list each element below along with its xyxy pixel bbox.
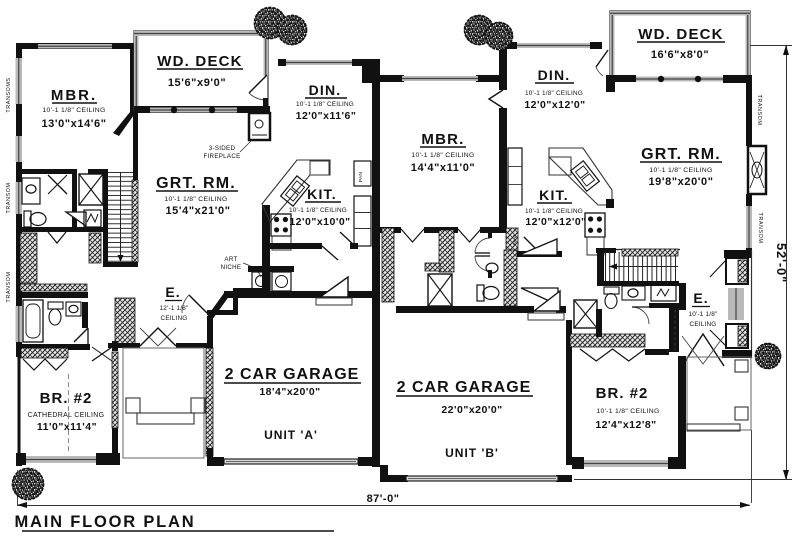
svg-text:15'6"x9'0": 15'6"x9'0" <box>168 77 226 89</box>
svg-text:GRT. RM.: GRT. RM. <box>641 146 721 163</box>
svg-text:DIN.: DIN. <box>309 82 342 98</box>
svg-text:PAN: PAN <box>358 172 364 182</box>
svg-text:MBR.: MBR. <box>421 131 464 148</box>
svg-text:TRANSOM: TRANSOM <box>6 183 12 214</box>
svg-text:10'-1 1/8" CEILING: 10'-1 1/8" CEILING <box>42 107 105 114</box>
svg-text:MAIN FLOOR PLAN: MAIN FLOOR PLAN <box>15 513 196 531</box>
svg-text:16'6"x8'0": 16'6"x8'0" <box>651 49 709 61</box>
svg-text:KIT.: KIT. <box>307 186 337 202</box>
svg-text:11'0"x11'4": 11'0"x11'4" <box>37 421 97 433</box>
svg-text:E.: E. <box>165 284 180 300</box>
svg-text:10'-1 1/8": 10'-1 1/8" <box>689 311 718 318</box>
svg-text:10'-1 1/8" CEILING: 10'-1 1/8" CEILING <box>525 208 583 215</box>
svg-text:18'4"x20'0": 18'4"x20'0" <box>259 386 320 398</box>
svg-text:10'-1 1/8" CEILING: 10'-1 1/8" CEILING <box>289 207 347 214</box>
svg-text:TRANSOMS: TRANSOMS <box>6 77 12 112</box>
svg-text:TRANSOM: TRANSOM <box>757 213 763 244</box>
svg-text:TRANSOM: TRANSOM <box>6 272 12 303</box>
svg-text:12'0"x12'0": 12'0"x12'0" <box>524 99 585 111</box>
svg-text:12'4"x12'8": 12'4"x12'8" <box>595 419 656 431</box>
svg-text:ART: ART <box>224 256 237 263</box>
svg-text:10'-1 1/8" CEILING: 10'-1 1/8" CEILING <box>411 152 474 159</box>
svg-text:87'-0": 87'-0" <box>367 493 400 505</box>
svg-text:52'-0": 52'-0" <box>774 243 789 283</box>
svg-text:GRT. RM.: GRT. RM. <box>156 175 236 192</box>
svg-text:15'4"x21'0": 15'4"x21'0" <box>165 205 230 217</box>
svg-text:PAN: PAN <box>511 235 517 245</box>
svg-text:22'0"x20'0": 22'0"x20'0" <box>441 404 502 416</box>
svg-text:WD. DECK: WD. DECK <box>638 26 723 43</box>
svg-text:CEILING: CEILING <box>161 315 188 322</box>
svg-text:10'-1 1/8" CEILING: 10'-1 1/8" CEILING <box>649 167 712 174</box>
svg-text:TRANSOM: TRANSOM <box>756 95 762 126</box>
svg-text:13'0"x14'6": 13'0"x14'6" <box>41 118 106 130</box>
svg-text:CATHEDRAL CEILING: CATHEDRAL CEILING <box>28 412 105 419</box>
svg-text:CEILING: CEILING <box>690 321 717 328</box>
svg-text:12'0"x11'6": 12'0"x11'6" <box>296 110 357 122</box>
svg-text:UNIT 'B': UNIT 'B' <box>445 446 499 460</box>
svg-text:2 CAR GARAGE: 2 CAR GARAGE <box>397 379 532 396</box>
svg-text:10'-1 1/8" CEILING: 10'-1 1/8" CEILING <box>164 196 227 203</box>
svg-text:10'-1 1/8" CEILING: 10'-1 1/8" CEILING <box>596 408 659 415</box>
svg-text:WD. DECK: WD. DECK <box>157 53 242 70</box>
svg-text:BR. #2: BR. #2 <box>40 390 93 407</box>
svg-text:2 CAR GARAGE: 2 CAR GARAGE <box>225 366 360 383</box>
svg-text:NICHE: NICHE <box>221 264 242 271</box>
svg-text:3-SIDED: 3-SIDED <box>209 145 236 152</box>
svg-text:19'8"x20'0": 19'8"x20'0" <box>648 176 713 188</box>
svg-text:DIN.: DIN. <box>538 67 571 83</box>
svg-text:UNIT 'A': UNIT 'A' <box>264 428 318 442</box>
svg-text:10'-1 1/8" CEILING: 10'-1 1/8" CEILING <box>296 101 354 108</box>
svg-text:FIREPLACE: FIREPLACE <box>203 153 240 160</box>
svg-text:12'0"x10'0": 12'0"x10'0" <box>289 216 350 228</box>
svg-text:E.: E. <box>693 290 708 306</box>
svg-text:12'-1 1/8": 12'-1 1/8" <box>160 305 189 312</box>
svg-text:BR. #2: BR. #2 <box>596 385 649 402</box>
svg-text:KIT.: KIT. <box>539 187 569 203</box>
svg-text:MBR.: MBR. <box>51 87 97 104</box>
svg-text:12'0"x12'0": 12'0"x12'0" <box>525 216 586 228</box>
svg-text:10'-1 1/8" CEILING: 10'-1 1/8" CEILING <box>525 90 583 97</box>
svg-text:14'4"x11'0": 14'4"x11'0" <box>411 162 475 174</box>
